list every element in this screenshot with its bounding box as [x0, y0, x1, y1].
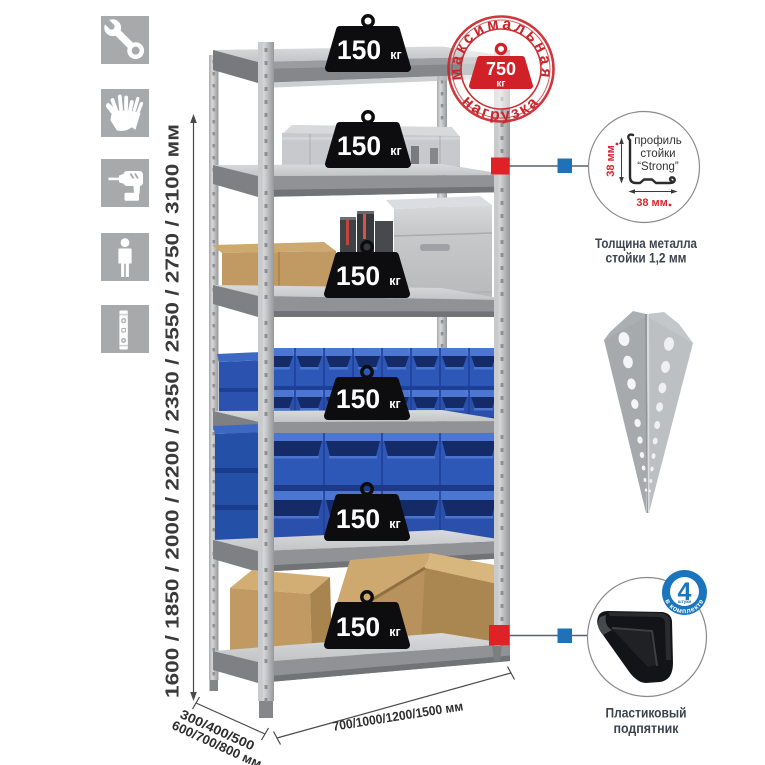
svg-text:150: 150 [336, 612, 380, 642]
svg-text:38 мм: 38 мм [605, 145, 617, 177]
svg-text:150: 150 [336, 504, 380, 534]
svg-text:кг: кг [496, 79, 505, 90]
svg-text:кг: кг [390, 144, 401, 158]
svg-text:стойки 1,2 мм: стойки 1,2 мм [606, 250, 687, 266]
svg-text:профиль: профиль [634, 135, 682, 147]
svg-text:150: 150 [336, 261, 380, 291]
svg-text:150: 150 [337, 35, 381, 65]
svg-text:кг: кг [389, 274, 400, 288]
svg-text:38 мм: 38 мм [636, 197, 668, 209]
svg-text:подпятник: подпятник [614, 720, 680, 736]
svg-text:“Strong”: “Strong” [637, 161, 679, 173]
svg-text:стойки: стойки [640, 148, 675, 160]
svg-text:кг: кг [389, 397, 400, 411]
svg-text:1600 / 1850 / 2000 / 2200 / 23: 1600 / 1850 / 2000 / 2200 / 2350 / 2550 … [163, 124, 183, 698]
svg-text:150: 150 [337, 131, 381, 161]
svg-text:150: 150 [336, 384, 380, 414]
svg-text:кг: кг [389, 625, 400, 639]
svg-text:кг: кг [389, 517, 400, 531]
svg-text:штуки: штуки [678, 599, 692, 604]
svg-text:Пластиковый: Пластиковый [606, 705, 687, 721]
svg-text:750: 750 [486, 59, 516, 79]
svg-text:кг: кг [390, 48, 401, 62]
